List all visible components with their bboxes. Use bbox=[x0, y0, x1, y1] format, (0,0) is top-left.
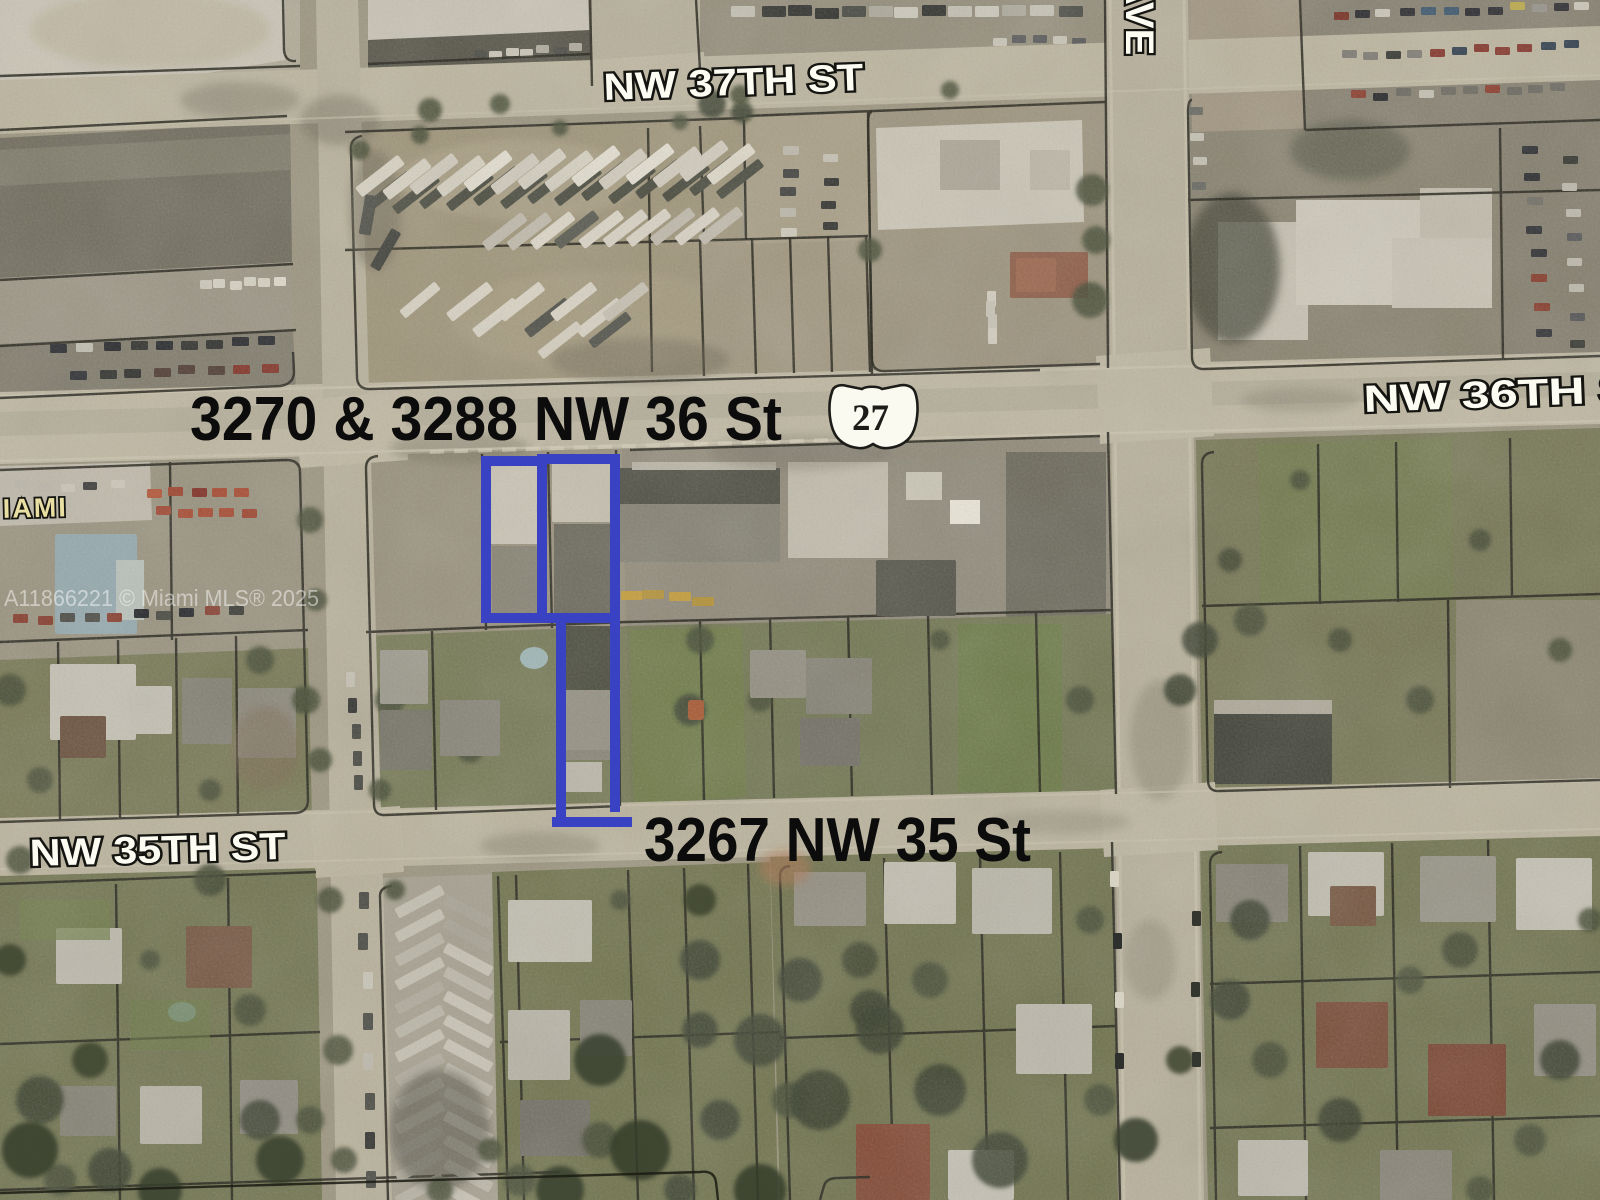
svg-text:3270 & 3288 NW 36 St: 3270 & 3288 NW 36 St bbox=[190, 385, 782, 454]
svg-text:3267 NW 35 St: 3267 NW 35 St bbox=[644, 806, 1031, 875]
svg-text:27: 27 bbox=[852, 398, 889, 439]
svg-text:A11866221 © Miami MLS® 2025: A11866221 © Miami MLS® 2025 bbox=[4, 585, 319, 611]
svg-text:AVE: AVE bbox=[1117, 0, 1161, 55]
svg-text:NW 35TH ST: NW 35TH ST bbox=[29, 826, 286, 875]
svg-text:IAMI: IAMI bbox=[2, 492, 68, 524]
